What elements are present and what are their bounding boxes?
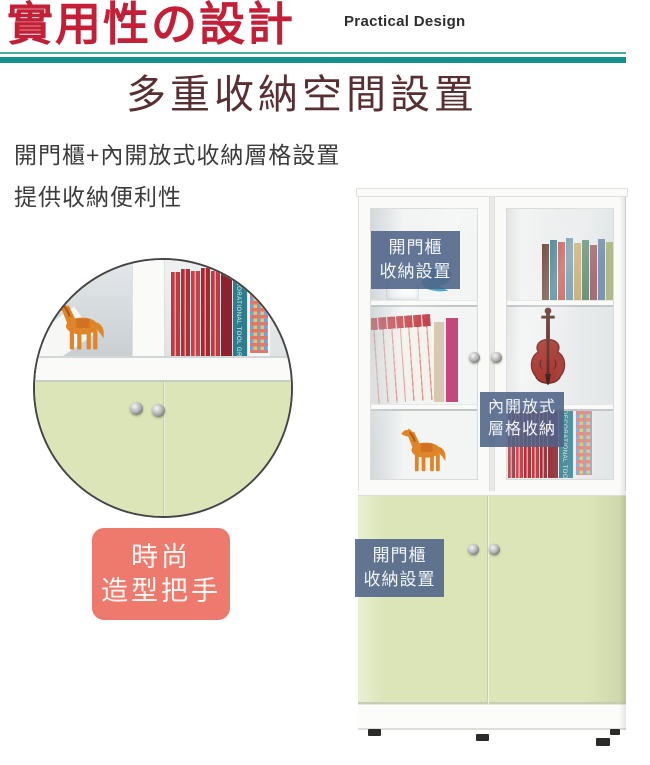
cabinet-foot (610, 729, 620, 735)
badge-line-1: 時尚 (131, 544, 191, 571)
book-spine (211, 271, 220, 356)
green-doors (358, 496, 626, 704)
header-rule-thin (0, 52, 626, 54)
description-line-2: 提供收納便利性 (14, 183, 182, 213)
callout-bottom-door: 開門櫃 收納設置 (355, 539, 444, 597)
header-rule-thick (0, 57, 626, 63)
page-title: 實用性の設計 (7, 1, 295, 49)
cabinet-side-shadow (619, 197, 626, 730)
door-knob (468, 544, 479, 555)
cabinet-foot (596, 738, 610, 746)
inset-door-frame (132, 260, 165, 356)
book-spine-decorational: DECORATIONAL TOOL GRAPH (233, 268, 247, 356)
cabinet-foot (476, 734, 489, 741)
book-row: DECORATIONAL TOOL GRAPH (171, 266, 270, 356)
book-spine (201, 268, 210, 356)
callout-top-door: 開門櫃 收納設置 (371, 231, 460, 289)
book-spine (221, 268, 232, 356)
book-spine (171, 272, 180, 356)
door-split (487, 496, 489, 704)
door-knob (152, 404, 165, 417)
inset-door-split (163, 382, 165, 518)
description-line-1: 開門櫃+內開放式收納層格設置 (14, 141, 340, 171)
promo-page: 實用性の設計 Practical Design 多重收納空間設置 開門櫃+內開放… (0, 0, 650, 765)
book-spine (191, 271, 200, 356)
handle-zoom-inset: DECORATIONAL TOOL GRAPH (33, 258, 293, 518)
cabinet-top-board (356, 188, 628, 197)
handle-style-badge: 時尚 造型把手 (92, 528, 230, 620)
horse-figurine (51, 298, 111, 356)
door-knob (491, 352, 502, 363)
door-knob (469, 352, 480, 363)
section-heading: 多重收納空間設置 (126, 71, 478, 119)
callout-inner-shelf: 內開放式 層格收納 (480, 392, 564, 447)
page-subtitle-en: Practical Design (344, 13, 466, 30)
door-knob (489, 544, 500, 555)
book-spine (181, 269, 190, 356)
badge-line-2: 造型把手 (101, 578, 221, 605)
inset-cabinet-rail (35, 356, 293, 382)
door-knob (130, 402, 143, 415)
cabinet-base (358, 704, 626, 730)
cabinet-foot (368, 729, 381, 736)
catalog-book (248, 270, 270, 356)
glass-door-right (495, 197, 625, 491)
